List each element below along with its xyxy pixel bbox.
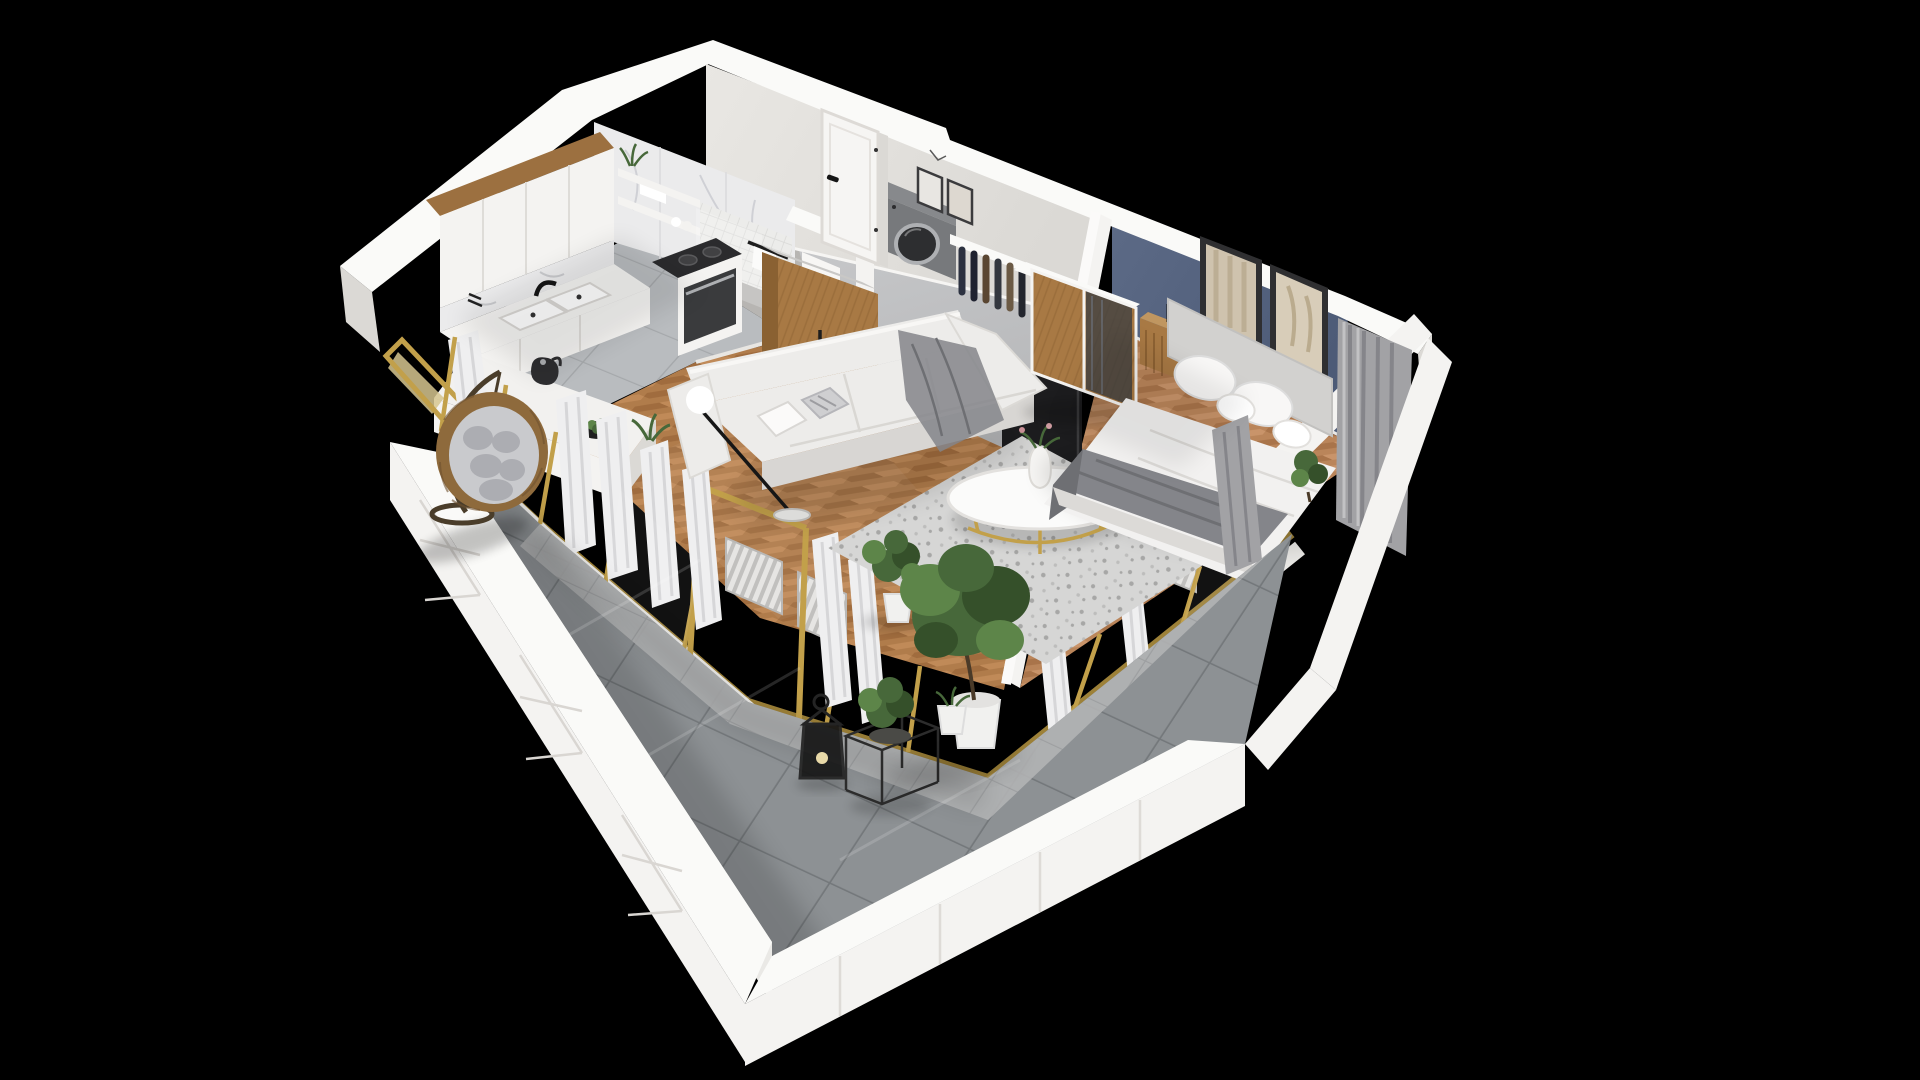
flower-2 bbox=[1046, 423, 1052, 429]
towel-roll bbox=[671, 217, 681, 227]
flower bbox=[1019, 427, 1025, 433]
lamp-globe bbox=[686, 386, 714, 414]
door-hinge bbox=[874, 148, 878, 152]
towel-roll-2 bbox=[682, 221, 692, 231]
door-hinge-2 bbox=[874, 228, 878, 232]
entrance-door bbox=[822, 110, 888, 268]
candle-glow bbox=[816, 752, 828, 764]
washer-knob-2 bbox=[892, 205, 896, 209]
lamp-base bbox=[774, 509, 810, 521]
floorplan-render: 3D cutaway floor plan of a one-bedroom a… bbox=[0, 0, 1920, 1080]
lantern-body bbox=[800, 724, 844, 778]
washer-door bbox=[896, 225, 938, 263]
plant-bowl bbox=[869, 728, 911, 744]
burner-2 bbox=[703, 247, 721, 257]
burner bbox=[679, 255, 697, 265]
